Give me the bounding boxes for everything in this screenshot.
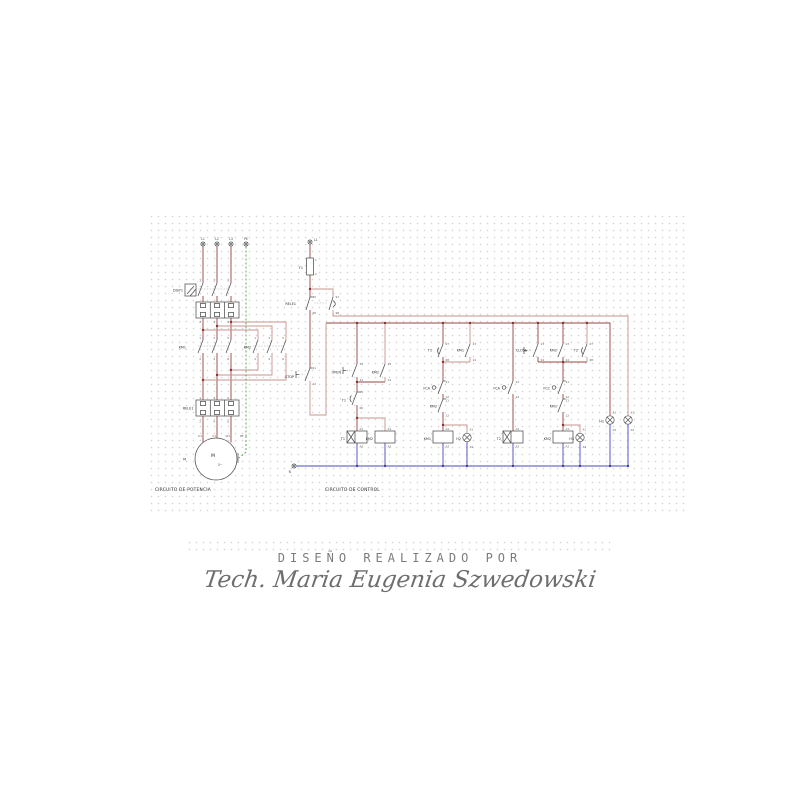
terminal-number: 66 <box>360 406 364 410</box>
fca-nc-label: FCA <box>423 387 430 391</box>
motor-terminal: W1 <box>225 434 230 438</box>
terminal-number: A2 <box>446 445 450 449</box>
terminal-pe <box>244 242 248 246</box>
terminal-number: X1 <box>583 428 587 432</box>
terminal-number: 67 <box>446 342 450 346</box>
terminal-number: 97 <box>336 295 340 299</box>
motor-inside-m: M <box>211 453 215 459</box>
terminal-number: 3 <box>213 279 215 283</box>
terminal-number: X2 <box>631 428 635 432</box>
t2-coil-label: T2 <box>496 437 501 441</box>
terminal-number: 11 <box>566 380 570 384</box>
stop-button-cap <box>296 371 299 378</box>
km1-aux-label: KM1 <box>457 349 464 353</box>
km1-power-blades <box>198 340 231 353</box>
terminal-number: A2 <box>360 445 364 449</box>
terminal-number: 13 <box>473 342 477 346</box>
terminal-control-line <box>308 240 312 244</box>
km2-coil-label: KM2 <box>366 437 373 441</box>
terminal-number: 13 <box>541 342 545 346</box>
km1-nc-label: KM1 <box>550 405 557 409</box>
terminal-number: 68 <box>590 358 594 362</box>
terminal-number: 95 <box>313 295 317 299</box>
fcc-nc-label: FCC <box>543 387 550 391</box>
phase-label: L3 <box>229 237 233 241</box>
terminal-number: 2 <box>199 320 201 324</box>
open-blade <box>352 364 357 377</box>
h3-lamp-label: H3 <box>569 437 574 441</box>
trip-lamp-icon <box>624 416 632 424</box>
terminal-number: 6 <box>282 357 284 361</box>
terminal-number: 5 <box>227 336 229 340</box>
terminal-number: 11 <box>446 380 450 384</box>
km2-aux-label: KM2 <box>372 371 379 375</box>
breaker-blades <box>198 283 231 296</box>
terminal-number: 98 <box>336 311 340 315</box>
terminal-number: A2 <box>516 445 520 449</box>
km2aux2-blade <box>558 344 563 357</box>
fca-no-label: FCA <box>493 387 500 391</box>
terminal-l1 <box>201 242 205 246</box>
km2-nc-label: KM2 <box>430 405 437 409</box>
aux-contact-wires <box>357 323 587 433</box>
terminal-number: 68 <box>446 358 450 362</box>
stop-blade <box>305 368 313 381</box>
terminal-number: A2 <box>566 445 570 449</box>
terminal-number: 5 <box>227 396 229 400</box>
h1-lamp-icon <box>606 416 614 424</box>
terminal-number: 11 <box>313 366 317 370</box>
terminal-number: 1 <box>254 336 256 340</box>
terminal-number: 4 <box>268 357 270 361</box>
terminal-number: 2 <box>254 357 256 361</box>
terminal-number: X1 <box>470 428 474 432</box>
open-button-label: OPEN <box>332 371 342 375</box>
terminal-number: 5 <box>227 279 229 283</box>
t2no-timer-arc <box>582 348 583 355</box>
fcc-roller <box>552 386 556 390</box>
fca-no-roller <box>502 386 506 390</box>
terminal-neutral <box>292 464 296 468</box>
relay-contact-label: RELE1 <box>285 302 296 306</box>
control-spine-wires <box>310 245 610 432</box>
motor-terminal: PE <box>240 434 244 438</box>
terminal-number: 5 <box>282 336 284 340</box>
neutral-label: N <box>289 470 292 474</box>
t1-no-label: T1 <box>427 349 432 353</box>
terminal-number: A2 <box>388 445 392 449</box>
terminal-number: 3 <box>268 336 270 340</box>
breaker-block <box>196 302 239 318</box>
terminal-number: 6 <box>227 320 229 324</box>
control-circuit-title: CIRCUITO DE CONTROL <box>325 487 380 493</box>
fuse-f1 <box>307 258 314 275</box>
terminal-number: A1 <box>516 427 520 431</box>
t2-no-label: T2 <box>573 349 578 353</box>
phase-label: L2 <box>215 237 219 241</box>
km1-coil-label: KM1 <box>424 437 431 441</box>
mechanical-links <box>190 289 585 399</box>
terminal-number: 96 <box>313 311 317 315</box>
relay-no-lamp-wire <box>310 289 628 416</box>
km1-coil-box <box>433 431 453 443</box>
thermal-relay-label: RELE1 <box>183 407 194 411</box>
motor-circle <box>195 438 237 480</box>
terminal-number: 4 <box>213 420 215 424</box>
live-wires <box>203 245 610 443</box>
terminal-number: X2 <box>470 445 474 449</box>
terminal-number: 3 <box>213 336 215 340</box>
thermal-relay-block <box>196 400 239 416</box>
terminal-number: 2 <box>315 272 317 276</box>
terminal-number: 2 <box>199 420 201 424</box>
control-circuit-labels: L1 F1 1 2 RELE1 95 96 97 98 STOP 11 12 O… <box>285 238 634 493</box>
neutral-wires <box>297 424 629 466</box>
terminal-number: X2 <box>583 445 587 449</box>
fuse-label: F1 <box>299 266 303 270</box>
terminal-number: 67 <box>590 342 594 346</box>
terminal-number: 13 <box>360 362 364 366</box>
motor-label: M <box>183 458 186 462</box>
terminal-number: 14 <box>388 378 392 382</box>
live-wires-light <box>203 289 628 433</box>
signature: Tech. Maria Eugenia Szwedowski <box>0 567 800 593</box>
terminal-number: X1 <box>613 411 617 415</box>
control-line-label: L1 <box>314 238 318 242</box>
terminal-l2 <box>215 242 219 246</box>
fca-nc-roller <box>432 386 436 390</box>
credit-line: DISEÑO REALIZADO POR <box>0 551 800 565</box>
terminal-number: 65 <box>360 390 364 394</box>
terminal-number: X1 <box>631 411 635 415</box>
terminal-number: 13 <box>516 380 520 384</box>
terminal-number: 1 <box>199 336 201 340</box>
pe-wire <box>239 247 246 459</box>
pe-ground-wire <box>239 247 246 459</box>
coil-neutral-drops <box>357 424 628 466</box>
h2-lamp-icon <box>463 433 471 441</box>
scanned-schematic-page: L1 L2 L3 PE DISY1 1 3 5 2 4 6 KM1 1 3 5 … <box>0 0 800 800</box>
t2-coil-box <box>503 431 523 443</box>
km1aux-blade <box>465 344 470 357</box>
terminal-number: 14 <box>473 358 477 362</box>
fca-no-blade <box>508 381 513 394</box>
terminal-number: 11 <box>566 399 570 403</box>
terminal-number: 6 <box>227 420 229 424</box>
t1nc-timer-arc <box>350 396 351 403</box>
terminal-number: 11 <box>446 399 450 403</box>
motor-terminal: U1 <box>198 434 202 438</box>
terminal-number: 12 <box>566 414 570 418</box>
h1-lamp-label: H1 <box>599 420 604 424</box>
terminal-number: 4 <box>213 357 215 361</box>
circuit-schematic: L1 L2 L3 PE DISY1 1 3 5 2 4 6 KM1 1 3 5 … <box>150 215 680 510</box>
phase-label: PE <box>244 237 248 241</box>
t1-coil-label: T1 <box>340 437 345 441</box>
terminal-number: 12 <box>446 414 450 418</box>
breaker-label: DISY1 <box>173 289 183 293</box>
t1-coil-box <box>347 431 367 443</box>
km2-aux-label: KM2 <box>550 349 557 353</box>
km2-power-blades <box>253 340 286 353</box>
t1no-timer-arc <box>438 348 439 355</box>
terminal-number: 14 <box>566 358 570 362</box>
terminal-number: 14 <box>516 395 520 399</box>
km2-label: KM2 <box>244 346 251 350</box>
terminal-number: 14 <box>541 358 545 362</box>
terminal-number: 1 <box>199 279 201 283</box>
open-button-cap <box>343 367 346 374</box>
terminal-number: A1 <box>446 427 450 431</box>
km2aux-blade <box>380 364 385 377</box>
h3-lamp-icon <box>576 433 584 441</box>
terminal-number: A1 <box>566 427 570 431</box>
terminal-number: 6 <box>227 357 229 361</box>
t1-nc-label: T1 <box>341 399 346 403</box>
terminal-number: A1 <box>388 427 392 431</box>
relay97-blade <box>329 297 335 310</box>
stop-button-label: STOP <box>285 375 294 379</box>
terminal-number: 14 <box>360 378 364 382</box>
junction-dots-live <box>202 288 588 426</box>
terminal-number: 4 <box>213 320 215 324</box>
terminal-number: 12 <box>313 382 317 386</box>
terminal-number: 13 <box>388 362 392 366</box>
motor-inside-type: 3~ <box>218 463 223 467</box>
terminal-number: 3 <box>213 396 215 400</box>
h2-lamp-label: H2 <box>456 437 461 441</box>
close-button-label: CLOSE <box>516 349 527 353</box>
motor-terminal: V1 <box>212 434 216 438</box>
terminal-number: 1 <box>315 258 317 262</box>
close-blade <box>533 344 538 357</box>
terminal-number: A1 <box>360 427 364 431</box>
km2-coil-label: KM2 <box>544 437 551 441</box>
km1-label: KM1 <box>179 346 186 350</box>
km2-nc-blade <box>438 399 446 412</box>
dotted-separator <box>186 539 614 551</box>
terminal-number: X2 <box>613 428 617 432</box>
terminal-l3 <box>229 242 233 246</box>
km2-coil-box <box>375 431 395 443</box>
terminal-number: 2 <box>199 357 201 361</box>
power-circuit-title: CIRCUITO DE POTENCIA <box>155 487 211 493</box>
km2-reversing-feeds <box>203 322 286 380</box>
terminal-number: 13 <box>566 342 570 346</box>
terminal-number: 1 <box>199 396 201 400</box>
km1-nc-blade <box>558 399 566 412</box>
phase-label: L1 <box>201 237 205 241</box>
